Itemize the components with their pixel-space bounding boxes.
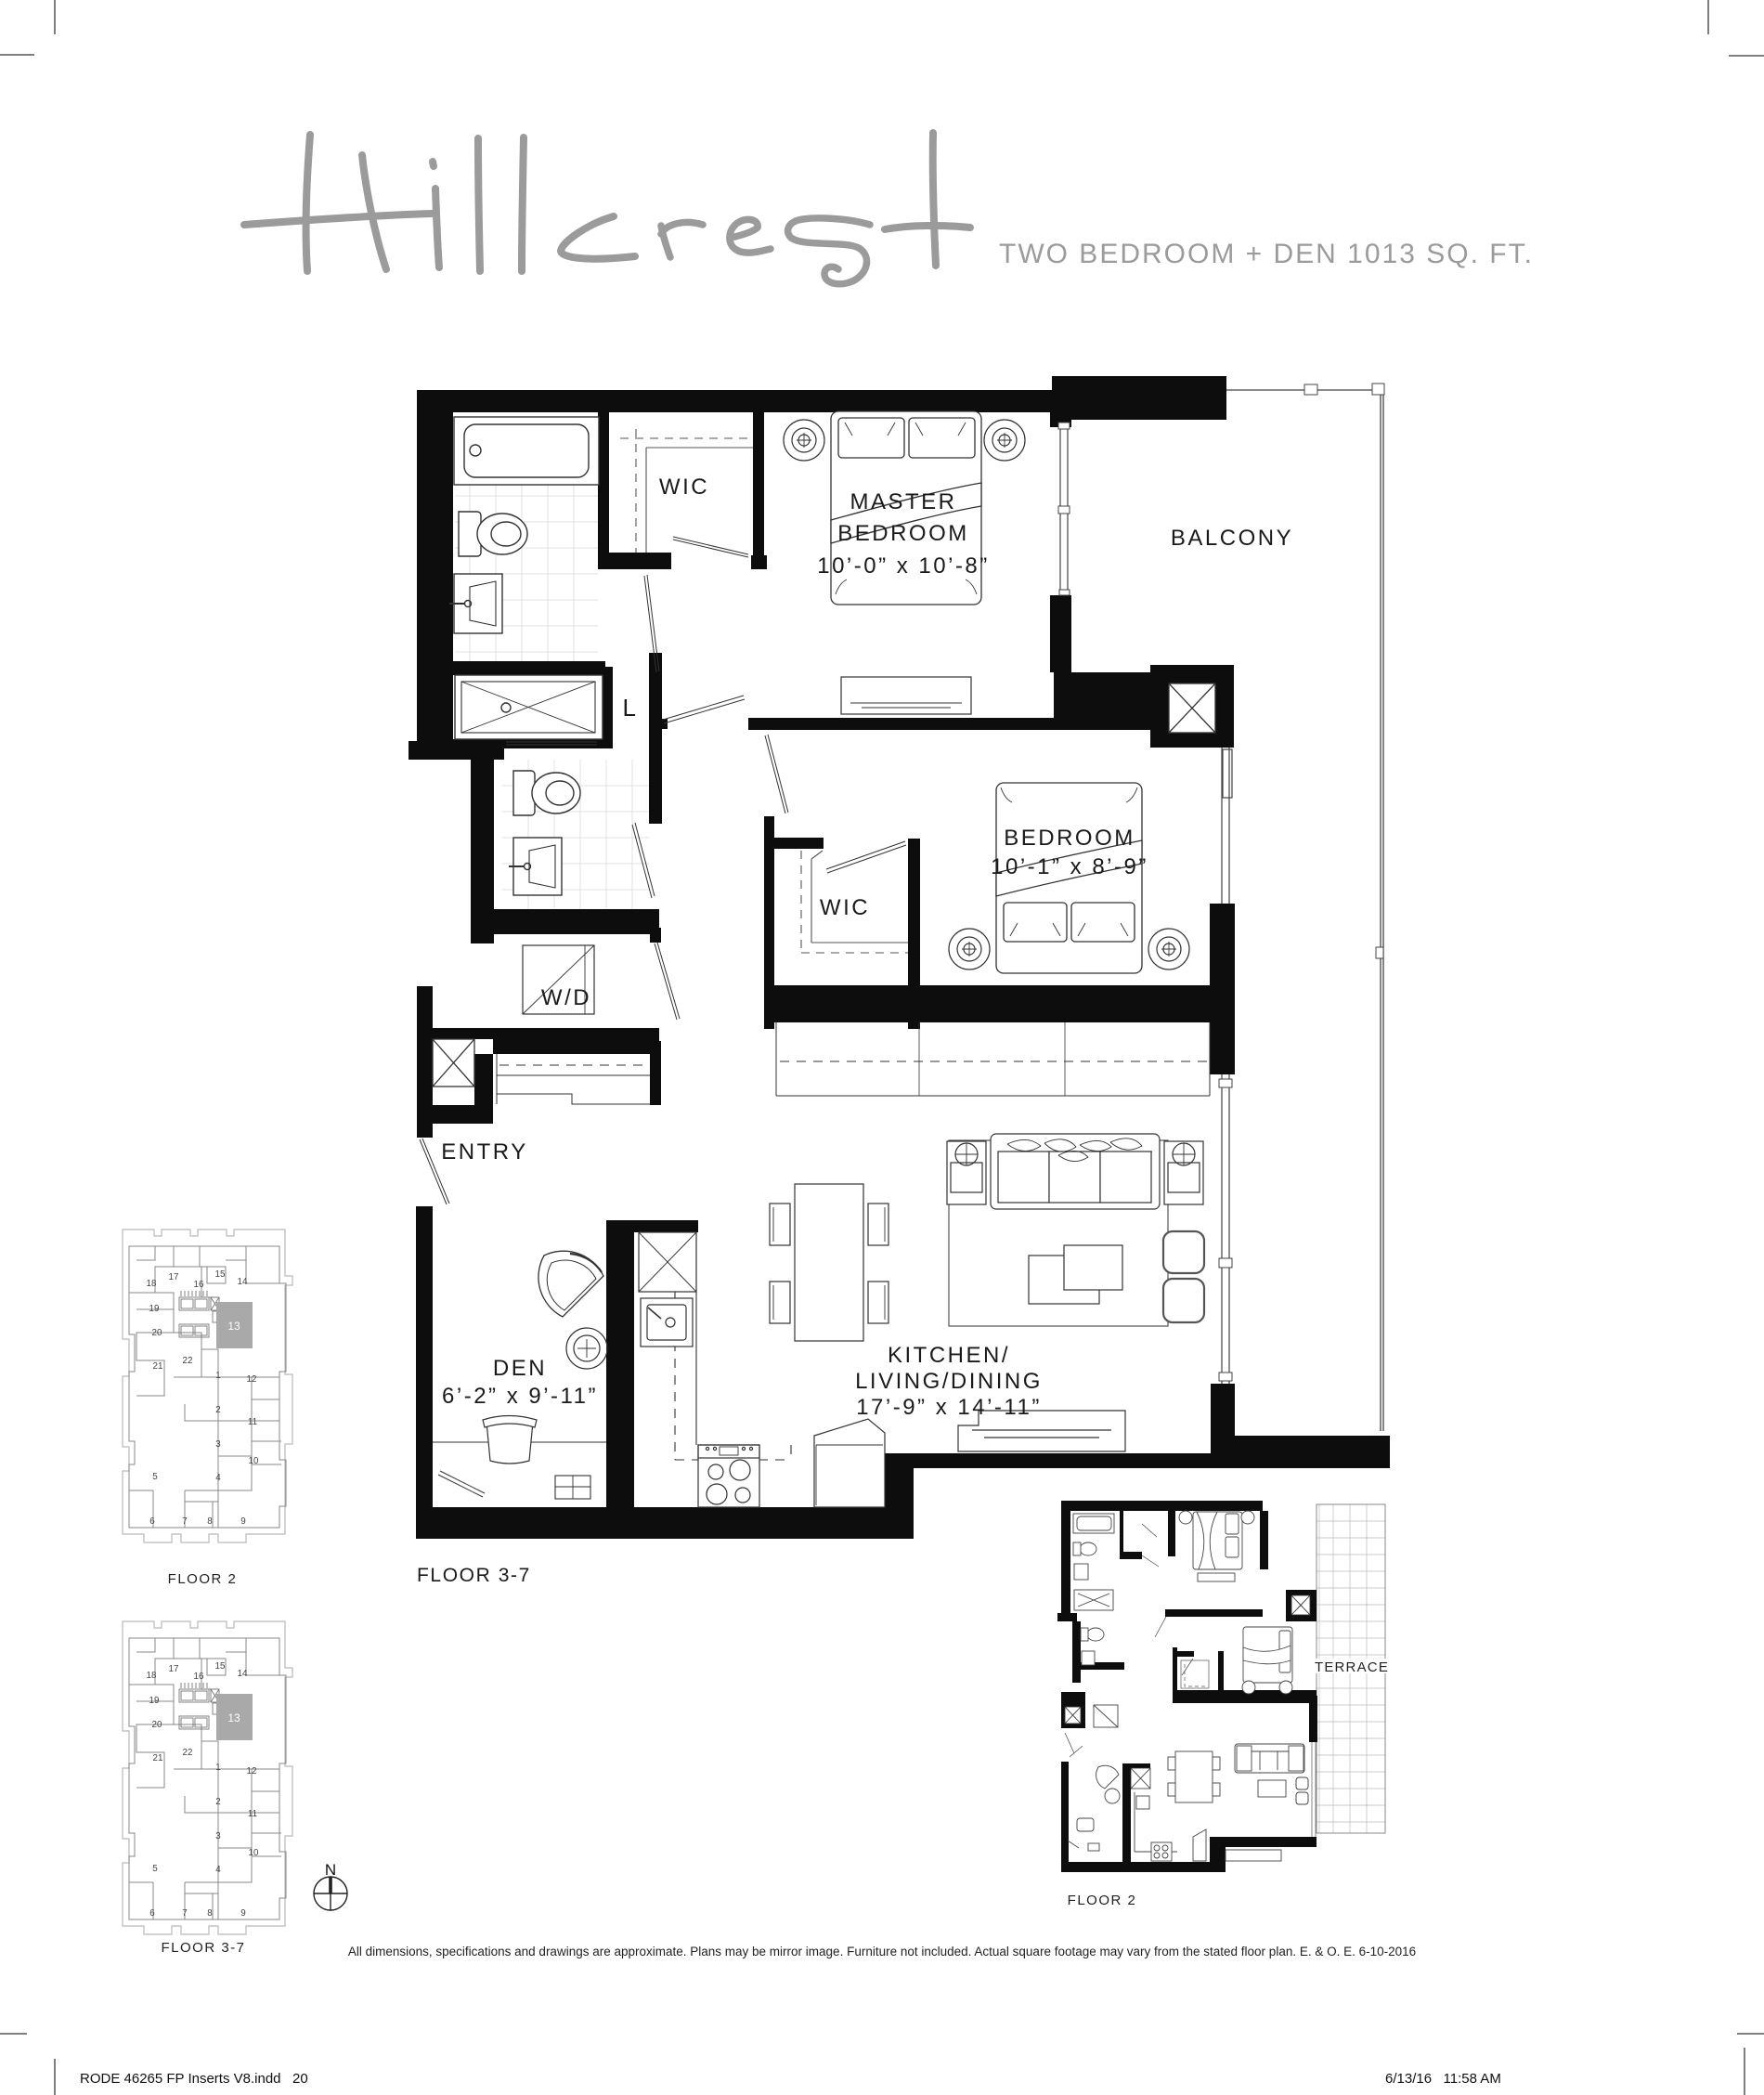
svg-text:LIVING/DINING: LIVING/DINING — [855, 1369, 1043, 1394]
svg-text:6’-2” x 9’-11”: 6’-2” x 9’-11” — [442, 1384, 598, 1409]
svg-text:FLOOR 3-7: FLOOR 3-7 — [161, 1940, 245, 1956]
svg-text:WIC: WIC — [659, 475, 709, 500]
svg-text:BALCONY: BALCONY — [1171, 526, 1293, 551]
svg-text:All dimensions, specifications: All dimensions, specifications and drawi… — [348, 1945, 1416, 1958]
svg-text:TWO BEDROOM + DEN 1013 SQ. FT.: TWO BEDROOM + DEN 1013 SQ. FT. — [999, 239, 1534, 269]
svg-text:FLOOR 3-7: FLOOR 3-7 — [417, 1565, 531, 1586]
svg-text:17’-9” x 14’-11”: 17’-9” x 14’-11” — [856, 1395, 1042, 1420]
svg-text:DEN: DEN — [493, 1356, 547, 1381]
svg-text:6/13/16 11:58 AM: 6/13/16 11:58 AM — [1385, 2071, 1501, 2087]
svg-text:RODE 46265 FP Inserts V8.indd: RODE 46265 FP Inserts V8.indd 20 — [80, 2071, 308, 2087]
svg-text:W/D: W/D — [541, 985, 591, 1010]
svg-text:KITCHEN/: KITCHEN/ — [888, 1343, 1010, 1368]
svg-text:10’-0” x 10’-8”: 10’-0” x 10’-8” — [817, 553, 990, 579]
svg-text:FLOOR 2: FLOOR 2 — [1068, 1893, 1137, 1908]
svg-text:10’-1” x 8’-9”: 10’-1” x 8’-9” — [991, 854, 1148, 879]
svg-text:L: L — [623, 694, 639, 722]
svg-text:MASTER: MASTER — [850, 489, 956, 514]
svg-text:N: N — [325, 1861, 336, 1879]
svg-text:ENTRY: ENTRY — [441, 1139, 527, 1165]
svg-text:FLOOR 2: FLOOR 2 — [168, 1571, 238, 1587]
svg-text:BEDROOM: BEDROOM — [1004, 826, 1135, 851]
svg-text:BEDROOM: BEDROOM — [837, 521, 969, 546]
svg-text:TERRACE: TERRACE — [1315, 1659, 1389, 1675]
svg-text:WIC: WIC — [820, 895, 870, 920]
